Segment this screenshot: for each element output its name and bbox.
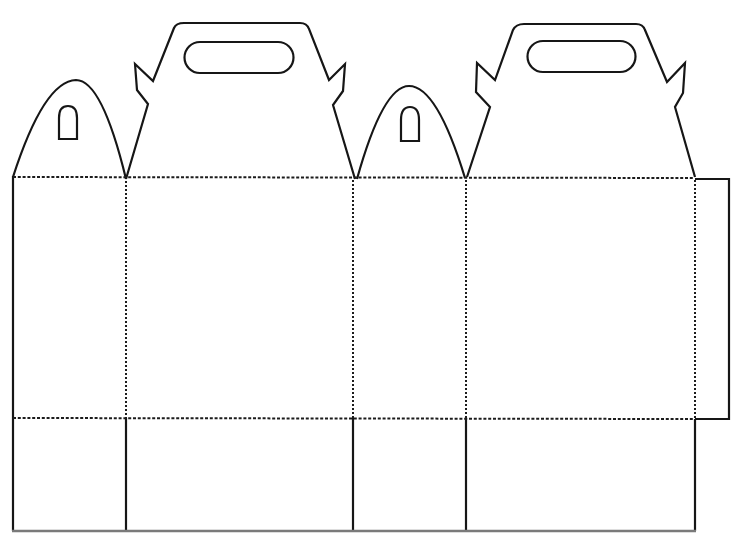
small-arch-2-slot-cutout [401, 107, 419, 141]
glue-tab-cut-edge [695, 179, 729, 419]
gable-box-template-drawing [0, 0, 735, 549]
small-arch-1-outline [13, 80, 126, 179]
gable-handle-2-grip-cutout [528, 41, 636, 72]
small-arch-2-outline [357, 86, 465, 179]
gable-handle-1-grip-cutout [184, 42, 293, 73]
small-arch-1-slot-cutout [59, 106, 77, 139]
page-canvas [0, 0, 735, 549]
gable-handle-1-outline [126, 23, 355, 179]
box-template-figure [0, 0, 735, 549]
gable-handle-2-outline [467, 24, 695, 177]
